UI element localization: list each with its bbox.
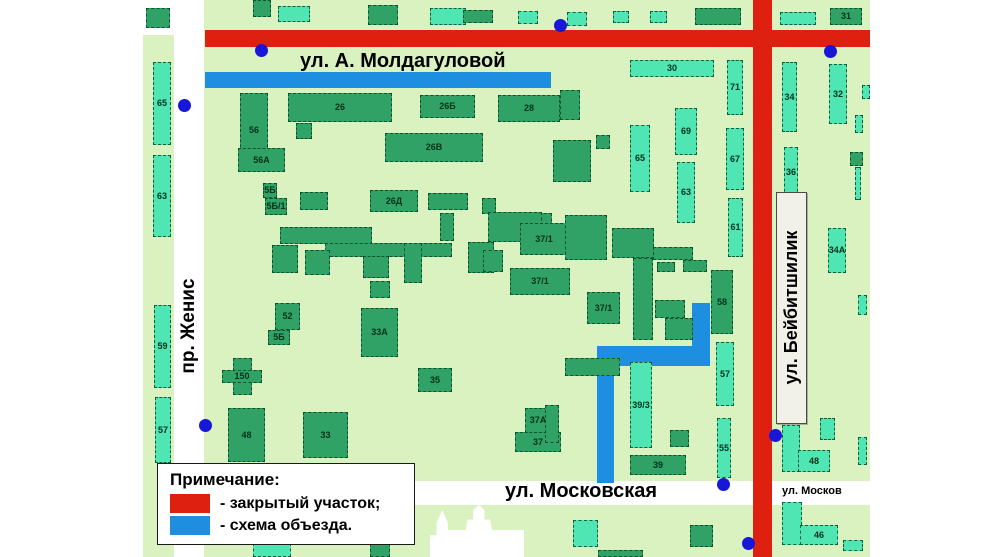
building-label: 5Б/1 [267,202,286,211]
building-label: 26Б [439,102,455,111]
building-label: 37/1 [531,277,549,286]
building [404,243,422,283]
building [368,5,398,25]
building [518,11,538,24]
closed-section-swatch [170,494,210,513]
building [428,193,468,210]
building-label: 46 [814,531,824,540]
building [653,247,693,260]
building [565,358,620,376]
building-label: 36 [786,168,796,177]
building [278,6,310,22]
building-label: 39/3 [632,401,650,410]
building [430,8,466,25]
building-label: 33А [371,328,388,337]
building-label: 57 [158,426,168,435]
building-label: 33 [320,431,330,440]
detour-route-swatch [170,516,210,535]
building-label: 63 [681,188,691,197]
building [780,12,816,25]
building: 31 [830,8,862,25]
street-label-moskovskaya: ул. Московская [505,480,657,503]
building [690,525,713,547]
building-label: 58 [717,298,727,307]
building [855,115,863,133]
building: 36 [784,147,798,197]
building: 26Д [370,190,418,212]
building-label: 26Д [386,197,402,206]
building-label: 28 [524,104,534,113]
street-label-beybitshilik-box: ул. Бейбитшилик [776,192,807,424]
building [300,192,328,210]
building-label: 71 [730,83,740,92]
building [695,8,741,25]
building-label: 63 [157,192,167,201]
building-label: 48 [241,431,251,440]
building: 150 [222,370,262,383]
building [855,167,861,200]
building [843,540,863,551]
building [858,437,867,465]
building-label: 65 [635,154,645,163]
legend-item-closed-label: - закрытый участок; [220,495,380,513]
building [370,281,390,298]
building: 26 [288,93,392,122]
street-label-moskovskaya-right: ул. Москов [782,485,842,497]
stop-dot [824,45,837,58]
building [545,405,559,443]
building-label: 34 [784,93,794,102]
building [782,502,802,545]
building [573,520,598,547]
building-label: 5Б [273,333,284,342]
building-label: 61 [730,223,740,232]
building: 37/1 [510,268,570,295]
building: 37/1 [587,292,620,324]
building-label: 35 [430,376,440,385]
building-label: 37А [530,416,547,425]
building: 33А [361,308,398,357]
building: 28 [498,95,560,122]
building [650,11,667,23]
building: 52 [275,303,300,330]
building: 67 [726,128,744,190]
building: 34А [828,228,846,273]
map-canvas: 6563595731562626Б2826В56А307165696763615… [0,0,1000,557]
building: 5Б [263,183,277,198]
building-label: 67 [730,155,740,164]
building-label: 56А [253,156,270,165]
building-label: 26 [335,103,345,112]
building: 34 [782,62,797,132]
building: 57 [716,342,734,406]
building-label: 31 [841,12,851,21]
building [613,11,629,23]
building-label: 32 [833,90,843,99]
closed-street-segment [753,0,772,557]
building: 59 [154,305,171,388]
stop-dot [742,537,755,550]
building-label: 69 [681,127,691,136]
building: 61 [728,198,743,257]
building-label: 37/1 [595,304,613,313]
building: 65 [153,62,171,145]
building [820,418,835,440]
map-scheme: 6563595731562626Б2826В56А307165696763615… [0,0,1000,557]
building [363,256,389,278]
building: 39 [630,455,686,475]
building [305,250,330,275]
building-label: 57 [720,370,730,379]
building [665,318,693,340]
building: 35 [418,368,452,392]
stop-dot [554,19,567,32]
building: 71 [727,60,743,115]
stop-dot [178,99,191,112]
building [253,0,271,17]
building: 48 [228,408,265,462]
stop-dot [255,44,268,57]
legend-item-closed: - закрытый участок; [170,494,414,513]
building: 57 [155,397,171,463]
legend-title: Примечание: [170,470,414,490]
building [598,550,643,557]
building: 56А [238,148,285,172]
building [560,90,580,120]
building-label: 52 [282,312,292,321]
building-label: 34А [829,246,846,255]
building: 26В [385,133,483,162]
building: 69 [675,108,697,155]
building: 63 [677,162,695,223]
building: 65 [630,125,650,192]
building [296,123,312,139]
building [325,243,452,257]
building-label: 39 [653,461,663,470]
building [440,213,454,241]
building-label: 5Б [264,186,275,195]
building: 30 [630,60,714,77]
building-label: 37/1 [535,235,553,244]
legend-item-detour: - схема объезда. [170,516,414,535]
building [683,260,707,272]
building [858,295,867,315]
building: 46 [800,525,838,545]
detour-route-segment [205,72,551,88]
building [596,135,610,149]
stop-dot [199,419,212,432]
street-label-beybitshilik: ул. Бейбитшилик [777,193,806,422]
building: 37/1 [520,223,568,255]
building: 5Б [268,330,290,345]
building: 58 [711,270,733,334]
building [146,8,170,28]
building [253,543,291,557]
building [280,227,372,244]
building: 33 [303,412,348,458]
building-label: 59 [157,342,167,351]
building [565,215,607,260]
building-label: 30 [667,64,677,73]
building [463,10,493,23]
building [657,262,675,272]
building [670,430,689,447]
building: 26Б [420,95,475,118]
building [633,258,653,340]
building [612,228,654,258]
building: 63 [153,155,171,237]
building [655,300,685,318]
building [850,152,863,166]
legend-item-detour-label: - схема объезда. [220,517,352,535]
building [567,12,587,26]
building [553,140,591,182]
building [272,245,298,273]
building: 39/3 [630,362,652,448]
building-label: 55 [719,444,729,453]
building-label: 56 [249,126,259,135]
building-label: 26В [426,143,443,152]
stop-dot [717,478,730,491]
building [862,85,870,99]
building: 48 [798,450,830,472]
street-label-zhenis: пр. Женис [176,261,202,391]
building: 32 [829,64,847,124]
building-label: 65 [157,99,167,108]
building-label: 37 [533,438,543,447]
building: 55 [717,418,731,478]
building-label: 48 [809,457,819,466]
street-label-moldagulova: ул. А. Молдагуловой [300,50,506,73]
building-label: 150 [234,372,249,381]
building: 5Б/1 [265,198,287,215]
building [483,250,503,272]
stop-dot [769,429,782,442]
legend: Примечание: - закрытый участок; - схема … [157,463,415,545]
